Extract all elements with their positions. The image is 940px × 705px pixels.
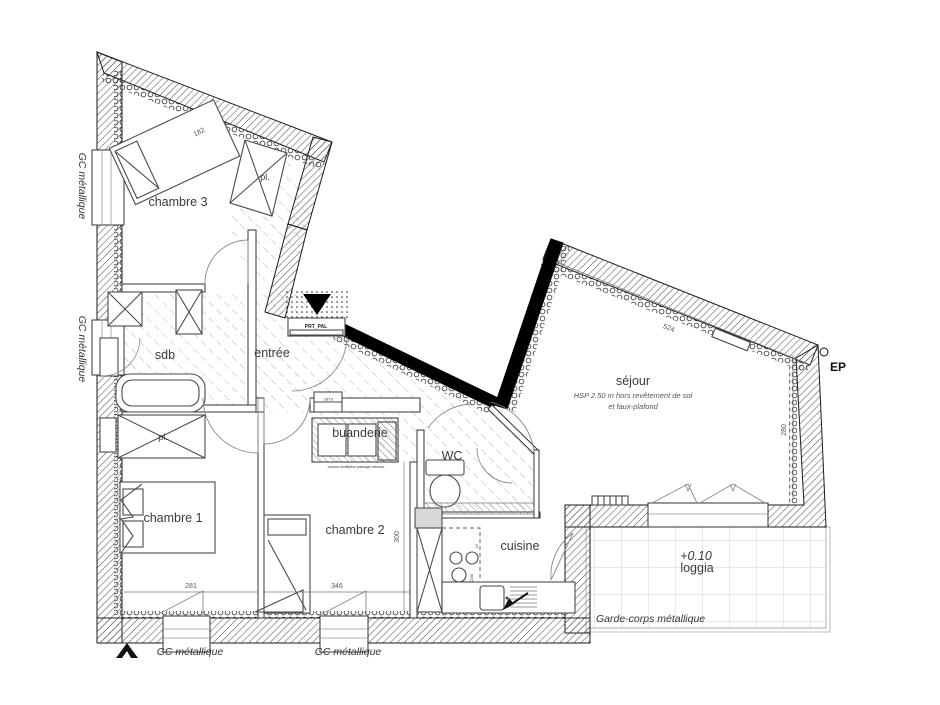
wall-ch2-right [410,462,417,618]
ep-label: EP [830,360,846,374]
label-sejour-note2: et faux-plafond [608,402,658,411]
wall-black-sejour [495,239,563,409]
label-cuisine: cuisine [501,539,540,553]
ep-marker: EP [820,348,846,374]
label-gc-left-bottom: GC métallique [76,316,88,383]
porte-paliere: PRT_PAL [288,318,345,336]
washbasin [100,338,118,376]
label-pl-chambre1: pl. [158,432,168,442]
burner [466,552,478,564]
wall-wc-right [534,450,539,518]
label-chambre3: chambre 3 [148,195,207,209]
label-sejour-note1: HSP 2.50 m hors revêtement de sol [574,391,693,400]
toilet-bowl [430,475,460,507]
label-sdb: sdb [155,348,175,362]
prt-pal-label: PRT_PAL [305,324,327,330]
label-garde-corps: Garde-corps métallique [596,613,705,625]
dim-sejour-h: 280 [781,424,788,436]
dim-chambre2-h: 300 [394,531,401,543]
cuisine-fixtures [415,508,575,613]
shelf [100,418,116,452]
cuisine-column [415,508,442,528]
wall-door-stub [256,398,264,412]
dim-chambre2: 346 [331,583,343,590]
wall-cuisine-loggia [565,505,590,633]
label-chambre2: chambre 2 [325,523,384,537]
label-gc-left-top: GC métallique [76,153,88,220]
label-elec: ELEC [323,397,333,401]
north-arrow-icon [116,643,138,658]
burner [450,552,462,564]
wall-sejour-top [543,239,818,365]
window-loggia-bay [648,484,768,527]
label-wc: WC [442,449,463,463]
label-buanderie: buanderie [332,426,388,440]
label-loggia: loggia [680,561,713,575]
insulation-notch-right [507,243,571,412]
label-sejour: séjour [616,374,650,388]
bed-chambre3 [109,100,239,205]
label-pl-chambre3: pl. [260,172,270,182]
insulation-sejour-top [540,259,810,373]
floor-plan: PRT_PAL EP 281 346 300 280 524 182 chamb… [0,0,940,705]
wall-sdb-right [248,230,256,412]
placard-chambre1 [100,415,205,458]
label-lv: LV [475,543,479,548]
radiator [592,496,628,505]
label-gc-bottom-left: GC métallique [157,646,224,658]
elec-box [314,392,342,412]
sejour-dim-line [556,262,806,363]
label-cuis: CUIS [470,573,474,582]
label-cloison-note: cloison ventilation passage réseaux [328,465,385,469]
dim-sejour-w: 524 [662,323,676,334]
wall-wc-left [417,430,424,518]
label-gc-bottom-right: GC métallique [315,646,382,658]
burner [452,568,466,582]
label-chambre1: chambre 1 [143,511,202,525]
wall-ch1-ch2 [258,412,264,618]
dim-chambre1: 281 [185,583,197,590]
floor-plan-drawing: PRT_PAL EP 281 346 300 280 524 182 chamb… [0,0,940,705]
entrance-landing: PRT_PAL [285,289,351,336]
counter [442,582,575,613]
label-entree: entrée [254,346,289,360]
